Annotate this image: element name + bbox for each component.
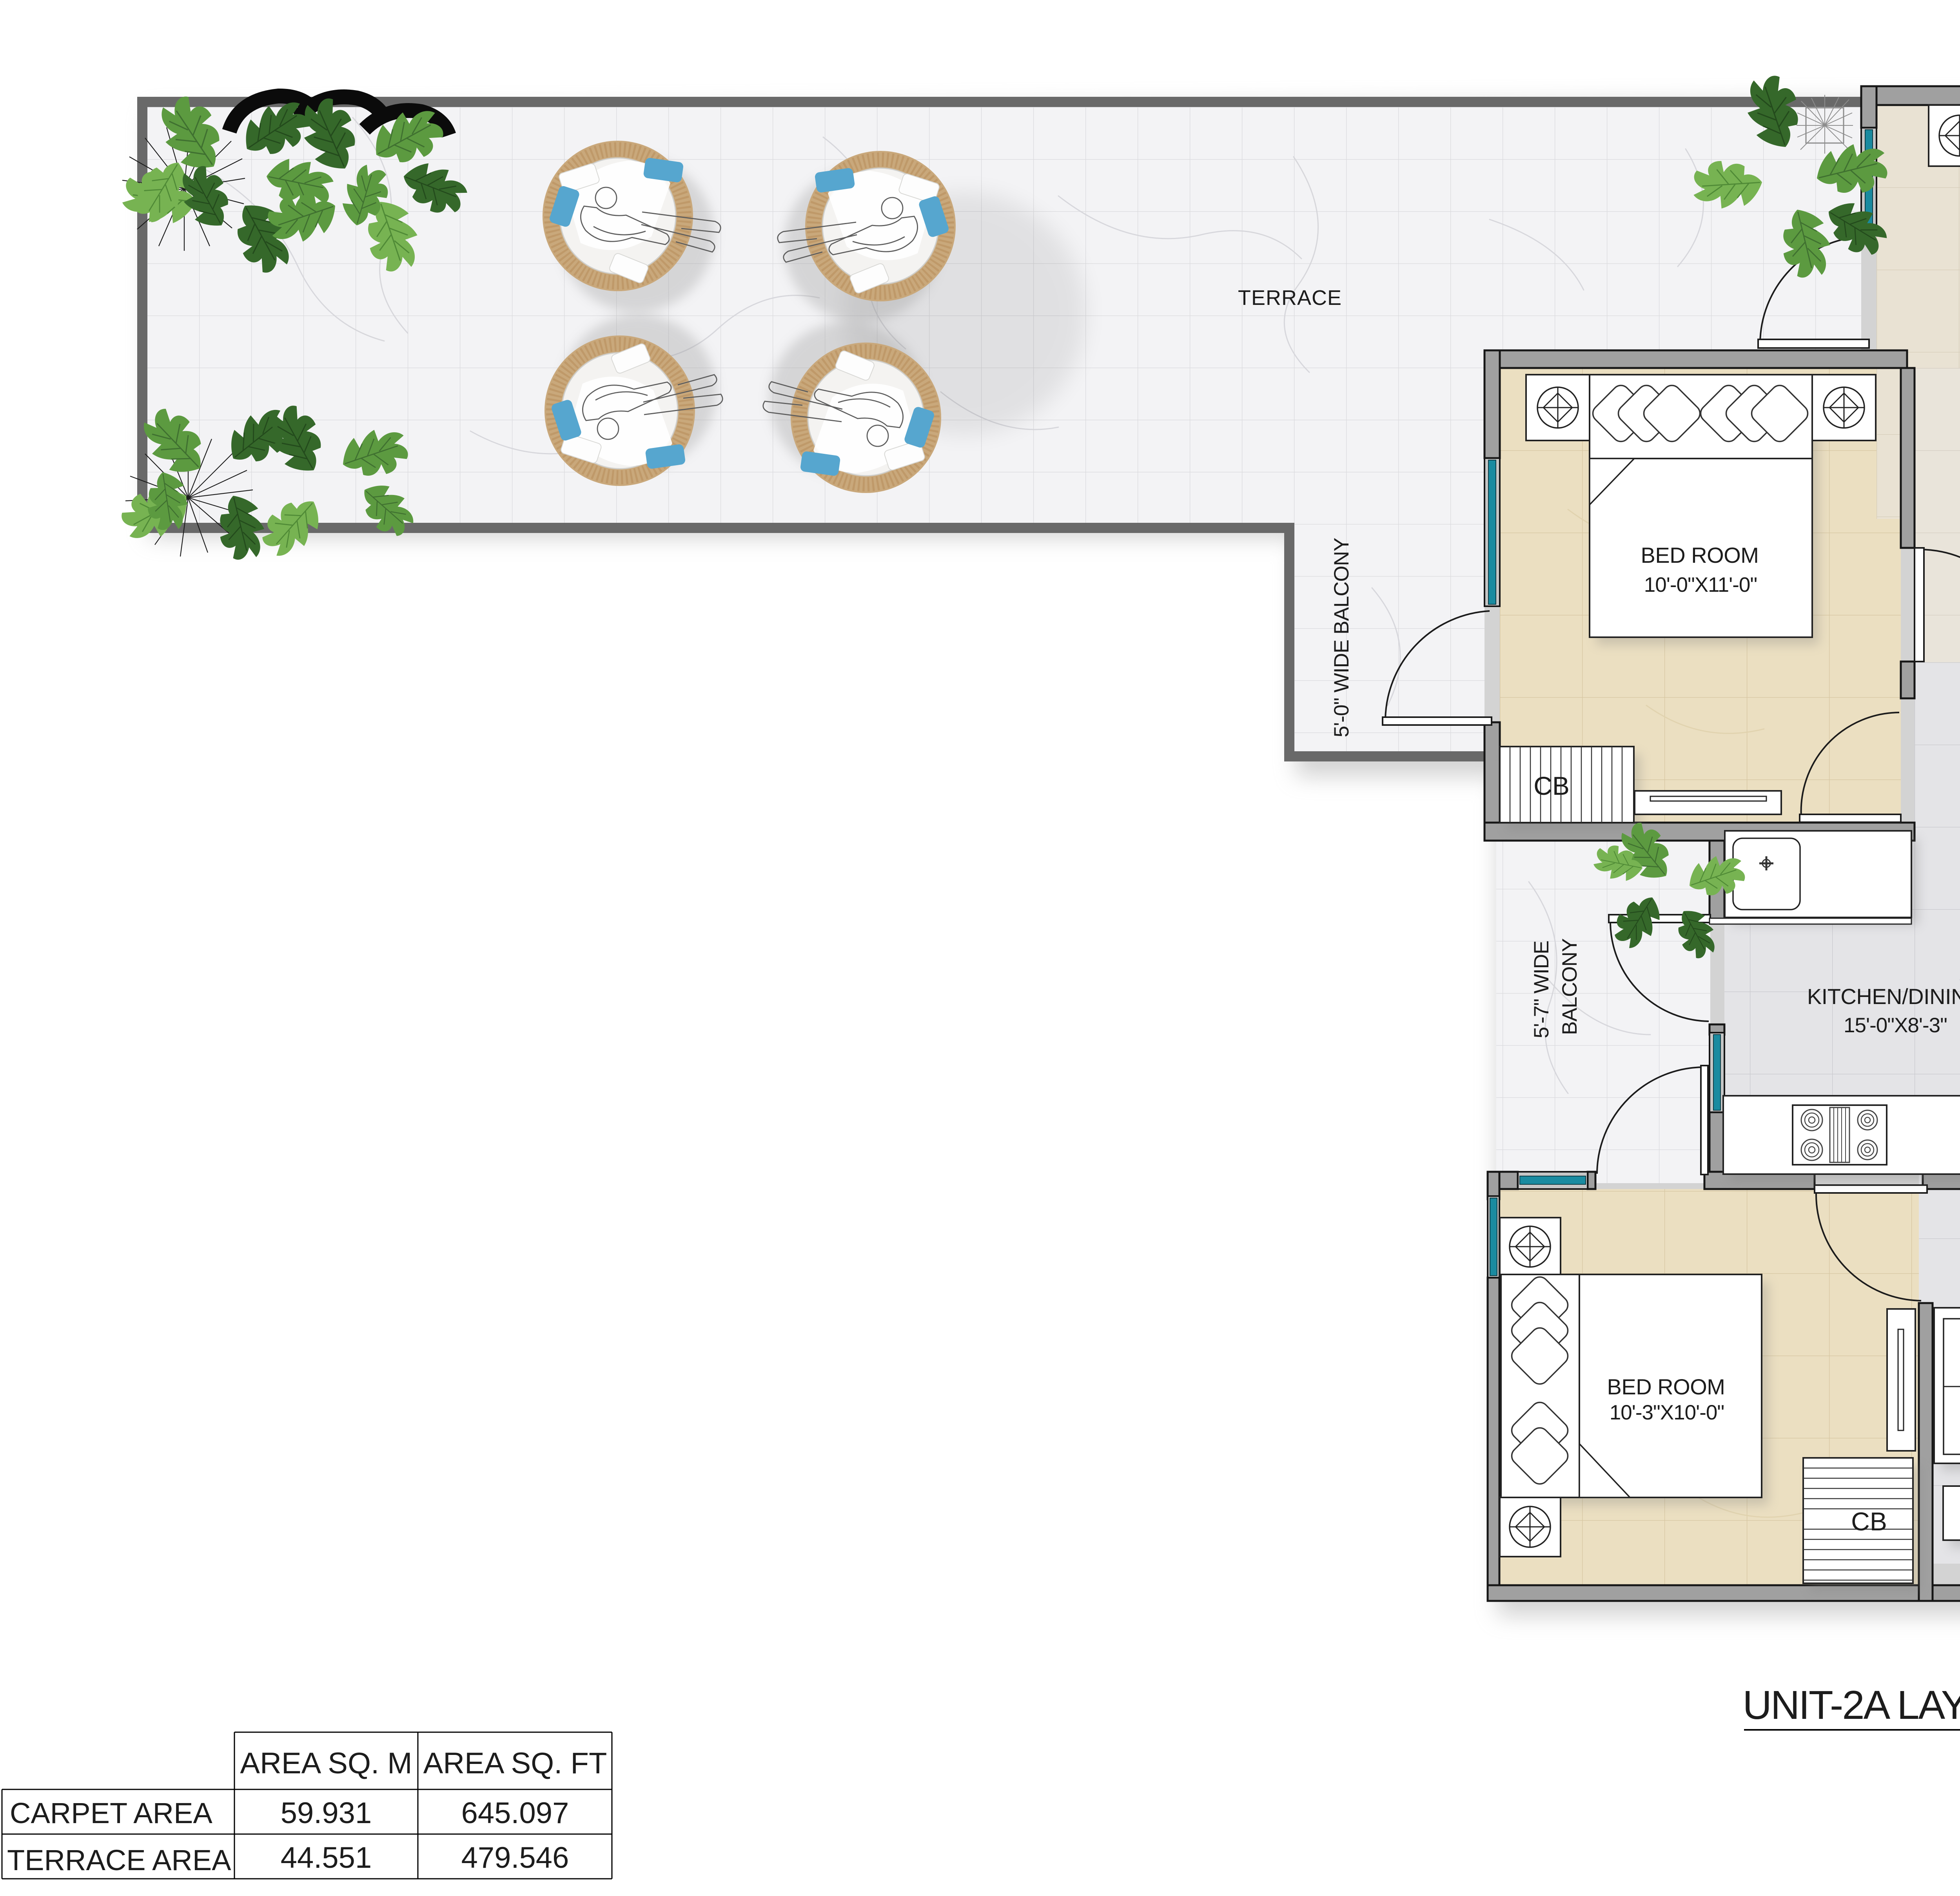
svg-text:CB: CB (1534, 771, 1570, 800)
svg-text:TERRACE: TERRACE (1238, 286, 1342, 310)
svg-text:15'-0"X8'-3": 15'-0"X8'-3" (1844, 1014, 1947, 1037)
svg-text:59.931: 59.931 (281, 1796, 372, 1830)
svg-text:AREA SQ. M: AREA SQ. M (240, 1747, 412, 1780)
svg-text:BED ROOM: BED ROOM (1641, 543, 1759, 567)
svg-text:UNIT-2A LAYOUT PLAN: UNIT-2A LAYOUT PLAN (1742, 1682, 1960, 1727)
svg-text:TERRACE AREA: TERRACE AREA (7, 1844, 231, 1876)
svg-text:645.097: 645.097 (461, 1796, 569, 1830)
svg-text:BED ROOM: BED ROOM (1607, 1374, 1725, 1399)
svg-text:10'-3"X10'-0": 10'-3"X10'-0" (1610, 1401, 1724, 1424)
svg-text:CARPET AREA: CARPET AREA (10, 1797, 212, 1829)
svg-text:479.546: 479.546 (461, 1841, 569, 1874)
svg-text:AREA SQ. FT: AREA SQ. FT (423, 1747, 607, 1780)
svg-text:44.551: 44.551 (281, 1841, 372, 1874)
svg-text:KITCHEN/DINING: KITCHEN/DINING (1807, 984, 1960, 1009)
svg-text:10'-0"X11'-0": 10'-0"X11'-0" (1644, 573, 1757, 596)
svg-text:BALCONY: BALCONY (1558, 938, 1581, 1035)
svg-text:5'-7" WIDE: 5'-7" WIDE (1530, 941, 1553, 1039)
svg-text:5'-0" WIDE BALCONY: 5'-0" WIDE BALCONY (1330, 538, 1353, 737)
svg-text:CB: CB (1851, 1507, 1887, 1536)
